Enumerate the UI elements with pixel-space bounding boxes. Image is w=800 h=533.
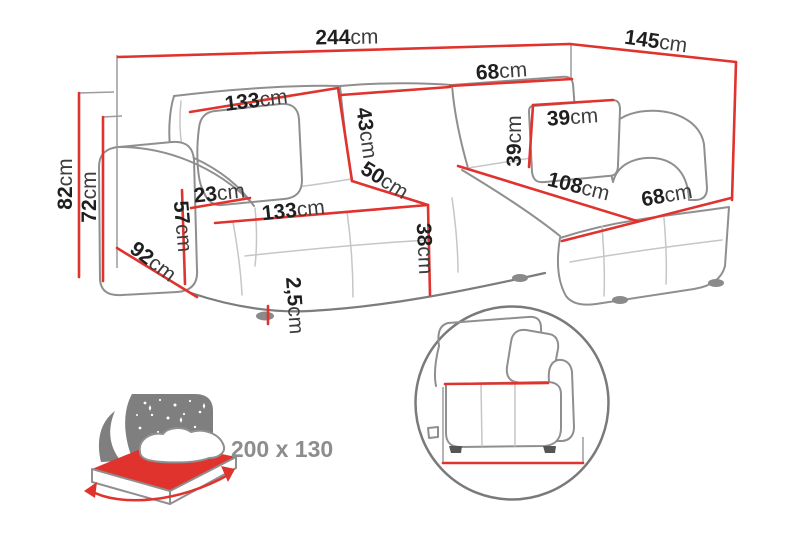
backrest-right-left-edge	[452, 85, 468, 168]
armrest-left-inner-face	[255, 208, 257, 266]
seat-seam-3	[452, 198, 458, 272]
detail-leg-right	[543, 446, 556, 453]
detail-seam-1	[481, 383, 482, 446]
dim-line-connector	[341, 87, 450, 95]
dim-label-w244: 244cm	[315, 25, 378, 49]
backrest-corner-top-edge	[340, 83, 452, 86]
sleeping-size-label: 200 x 130	[231, 436, 333, 462]
dim-line-detail-68	[445, 383, 548, 384]
seat-seam-1	[233, 222, 242, 295]
seat-leg-right	[512, 274, 528, 282]
dim-label-a57: 57cm	[169, 200, 196, 253]
chaise-block	[558, 207, 729, 305]
unfold-arrow-head-left	[84, 482, 97, 498]
dim-line-43	[338, 88, 352, 181]
dim-label-d145: 145cm	[623, 26, 689, 58]
detail-seat-block	[446, 382, 561, 447]
seat-seam-2	[347, 212, 353, 297]
dim-label-s50: 50cm	[357, 157, 413, 204]
night-sky-crescent	[99, 411, 121, 462]
seat-base-edge	[191, 273, 545, 311]
dim-label-s38: 38cm	[412, 222, 438, 274]
dim-label-p39h: 39cm	[503, 115, 526, 166]
dim-label-t82: 82cm	[54, 158, 77, 209]
seat-leg-left	[256, 312, 274, 321]
dim-label-b68: 68cm	[475, 58, 528, 85]
chaise-leg-right	[708, 279, 724, 287]
dim-line-right-vertical	[732, 62, 736, 200]
detail-circle-view	[416, 307, 609, 500]
sleeping-function-icon: 200 x 130	[84, 394, 333, 504]
dim-label-c68: 68cm	[640, 180, 695, 212]
dim-label-l25: 2,5cm	[281, 276, 308, 335]
frame-tick-82	[79, 92, 114, 93]
frame-tick-72	[103, 116, 122, 117]
dim-label-h43: 43cm	[351, 106, 381, 160]
chaise-leg-front	[612, 296, 628, 304]
dim-label-t72: 72cm	[78, 171, 101, 222]
seat-tuft-seam	[245, 240, 428, 256]
detail-leg-left	[449, 446, 462, 453]
dim-label-p39w: 39cm	[546, 104, 599, 131]
sofa-dimension-diagram: 244cm145cm68cm133cm43cm39cm39cm50cm108cm…	[0, 0, 800, 533]
